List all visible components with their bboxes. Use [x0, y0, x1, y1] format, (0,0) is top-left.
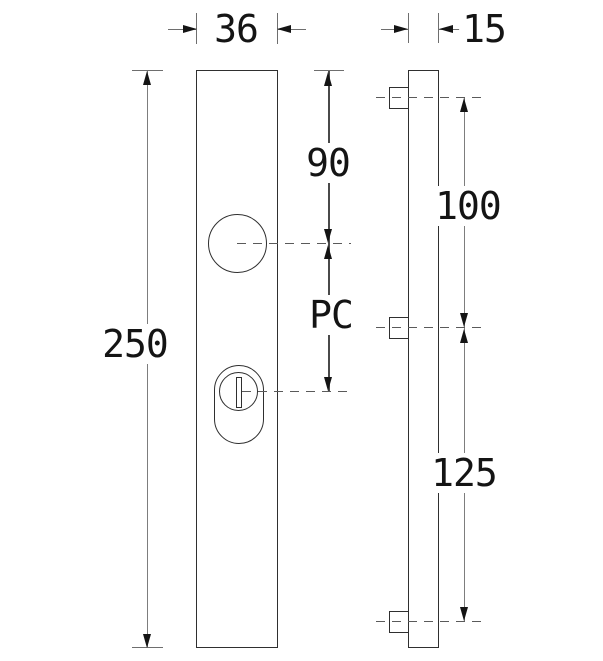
handle-offset-label: 90	[303, 143, 353, 183]
upper-spacing-label: 100	[432, 186, 504, 226]
upper-spacing-arrow-bottom	[460, 313, 468, 327]
handle-offset-arrow-bottom	[324, 229, 332, 243]
lug-top-centerline	[376, 97, 486, 99]
lower-spacing-label: 125	[428, 453, 500, 493]
lower-spacing-arrow-bottom	[460, 607, 468, 621]
lug-middle-centerline	[376, 327, 486, 329]
height-arrow-bottom	[143, 634, 151, 648]
technical-drawing-canvas: 36 250 90 PC	[0, 0, 603, 661]
upper-spacing-arrow-top	[460, 98, 468, 112]
pc-arrow-top	[324, 245, 332, 259]
lug-bottom-centerline	[376, 621, 486, 623]
width-arrow-left	[183, 25, 197, 33]
height-label: 250	[99, 324, 171, 364]
lower-spacing-arrow-top	[460, 329, 468, 343]
width-label: 36	[211, 9, 261, 49]
thickness-label: 15	[459, 9, 509, 49]
width-arrow-right	[277, 25, 291, 33]
pc-arrow-bottom	[324, 377, 332, 391]
cylinder-centerline	[242, 391, 352, 393]
height-arrow-top	[143, 71, 151, 85]
handle-offset-arrow-top	[324, 72, 332, 86]
handle-centerline	[237, 243, 351, 245]
side-profile-outline	[408, 70, 439, 648]
backplate-outline	[196, 70, 278, 648]
thickness-arrow-left	[394, 25, 408, 33]
pc-label: PC	[306, 295, 356, 335]
thickness-arrow-right	[439, 25, 453, 33]
